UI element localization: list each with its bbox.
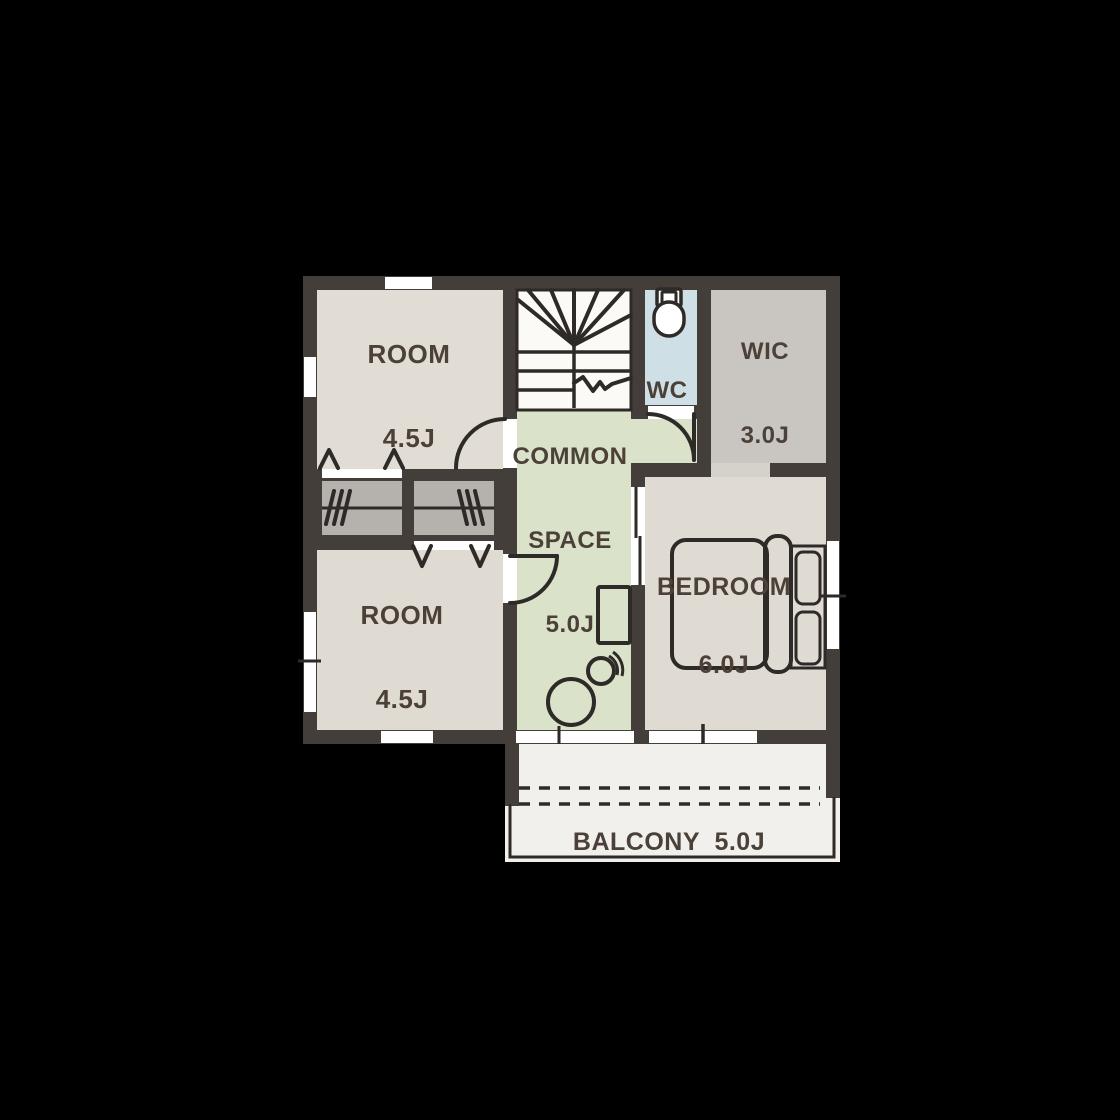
floor-plan-page: ROOM 4.5J ROOM 4.5J COMMON SPACE 5.0J WC… (0, 0, 1120, 1120)
wc-label: WC (647, 321, 688, 433)
common-space-label: COMMON SPACE 5.0J (513, 387, 628, 667)
bedroom-label: BEDROOM 6.0J (657, 522, 791, 704)
wic-name: WIC (741, 338, 790, 366)
room-bottom-left-area: 4.5J (361, 685, 444, 713)
window-left-upper (304, 357, 316, 397)
bedroom-area: 6.0J (657, 652, 791, 678)
room-bottom-left-name: ROOM (361, 601, 444, 629)
common-space-name-line2: SPACE (513, 527, 628, 555)
wc-name: WC (647, 377, 688, 405)
room-top-left-name: ROOM (368, 340, 451, 368)
wic-area: 3.0J (741, 422, 790, 450)
balcony-wall-stub-left (505, 744, 519, 806)
wic-label: WIC 3.0J (741, 282, 790, 478)
room-top-left-label: ROOM 4.5J (368, 284, 451, 480)
common-space-area: 5.0J (513, 611, 628, 639)
bedroom-name: BEDROOM (657, 574, 791, 600)
window-common-bottom (516, 731, 634, 743)
room-bottom-left-label: ROOM 4.5J (361, 545, 444, 741)
room-top-left-area: 4.5J (368, 424, 451, 452)
balcony-wall-stub-right (826, 744, 840, 798)
balcony-name-area: BALCONY 5.0J (573, 829, 765, 855)
balcony-label: BALCONY 5.0J (573, 777, 765, 881)
door-opening-bedroom (631, 487, 645, 585)
common-space-name-line1: COMMON (513, 443, 628, 471)
